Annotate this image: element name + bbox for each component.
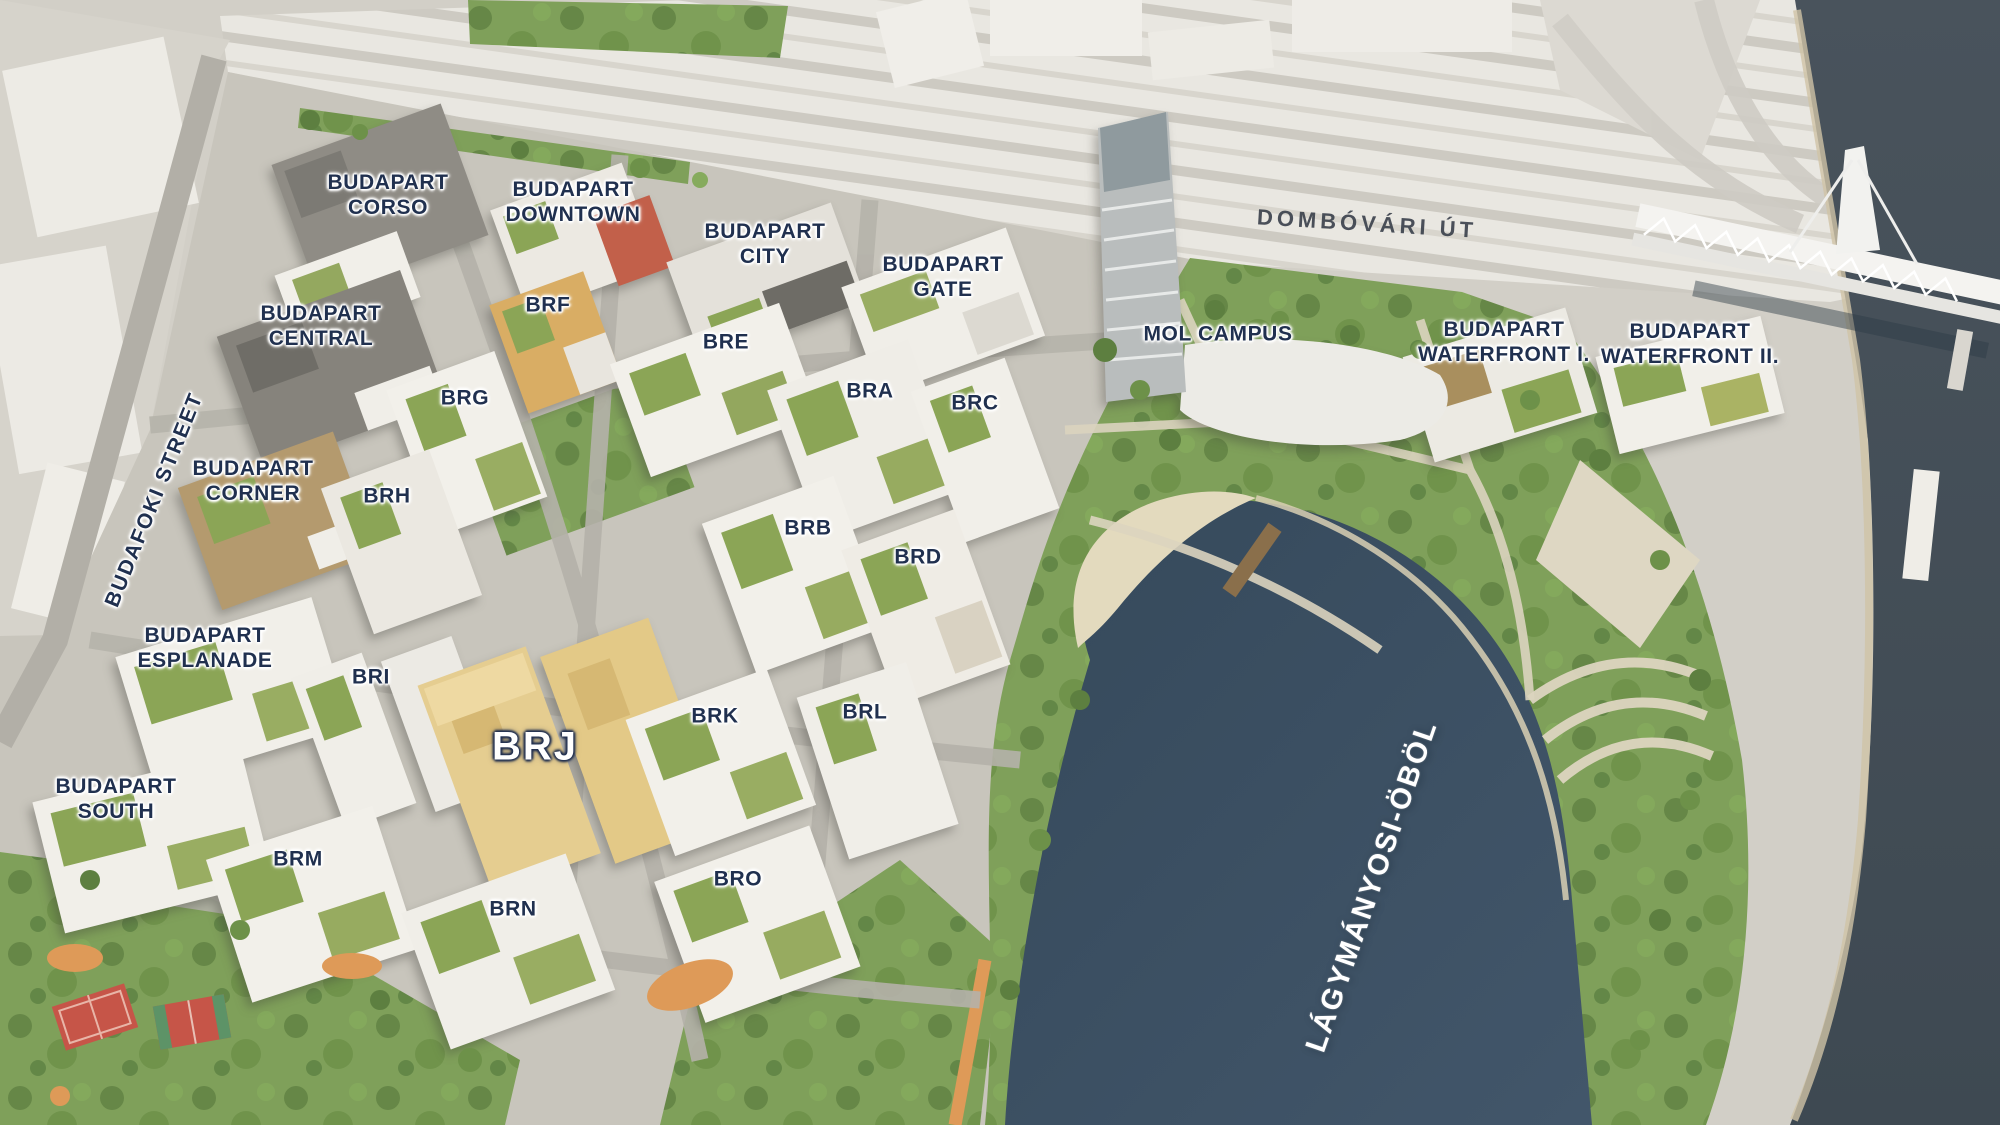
masterplan: BUDAPART CORSO BUDAPART DOWNTOWN BUDAPAR… xyxy=(0,0,2000,1125)
masterplan-render xyxy=(0,0,2000,1125)
